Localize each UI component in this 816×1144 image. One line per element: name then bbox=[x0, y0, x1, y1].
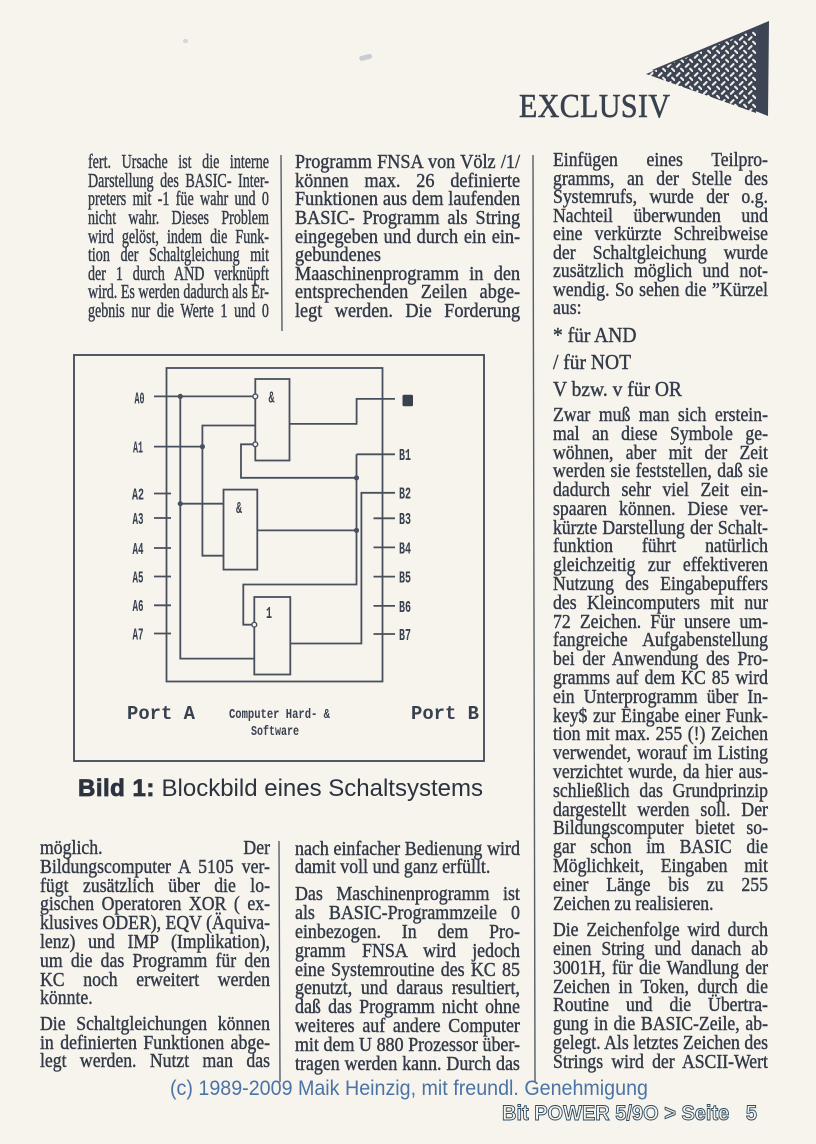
svg-text:B7: B7 bbox=[399, 627, 411, 646]
svg-text:A7: A7 bbox=[133, 626, 144, 645]
svg-text:1: 1 bbox=[266, 605, 272, 624]
svg-text:A6: A6 bbox=[133, 598, 144, 617]
svg-text:Port B: Port B bbox=[411, 703, 479, 725]
svg-text:Computer Hard- &: Computer Hard- & bbox=[229, 708, 331, 723]
svg-text:A3: A3 bbox=[133, 511, 144, 530]
svg-text:A4: A4 bbox=[133, 541, 144, 560]
svg-text:Port A: Port A bbox=[127, 703, 196, 725]
svg-text:A2: A2 bbox=[132, 486, 144, 505]
svg-text:&: & bbox=[269, 389, 275, 408]
svg-text:B4: B4 bbox=[399, 540, 411, 559]
svg-text:B2: B2 bbox=[399, 486, 411, 505]
svg-text:B6: B6 bbox=[399, 599, 411, 618]
svg-text:A1: A1 bbox=[133, 440, 143, 459]
svg-text:&: & bbox=[236, 500, 242, 519]
svg-text:B1: B1 bbox=[399, 447, 411, 466]
svg-text:B5: B5 bbox=[399, 570, 411, 589]
svg-text:Software: Software bbox=[251, 725, 299, 740]
svg-text:B3: B3 bbox=[399, 511, 411, 530]
svg-text:A5: A5 bbox=[133, 569, 144, 588]
svg-text:A0: A0 bbox=[135, 390, 145, 409]
